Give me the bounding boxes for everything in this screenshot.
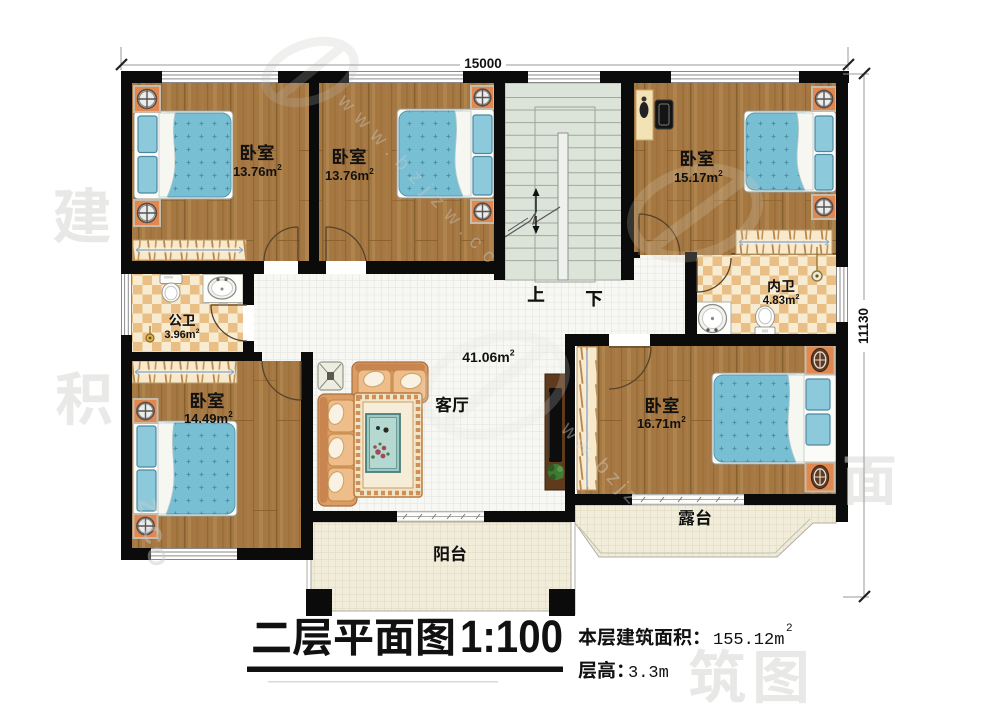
svg-text:2: 2 <box>228 410 233 419</box>
svg-text:41.06m: 41.06m <box>462 349 509 365</box>
svg-text:15.17m: 15.17m <box>674 170 718 185</box>
svg-text:2: 2 <box>510 348 515 358</box>
svg-text:1:100: 1:100 <box>460 611 563 662</box>
svg-text:2: 2 <box>796 293 800 301</box>
svg-text:4.83m: 4.83m <box>763 295 796 307</box>
svg-text:155.12m: 155.12m <box>713 631 784 650</box>
svg-text:16.71m: 16.71m <box>637 416 681 431</box>
svg-text:2: 2 <box>718 169 723 178</box>
svg-text:2: 2 <box>786 623 793 635</box>
svg-text:14.49m: 14.49m <box>184 411 228 426</box>
svg-text:13.76m: 13.76m <box>325 168 369 183</box>
svg-text:13.76m: 13.76m <box>233 164 277 179</box>
svg-text:2: 2 <box>369 167 374 176</box>
svg-text:11130: 11130 <box>856 308 871 344</box>
svg-text:15000: 15000 <box>464 56 502 71</box>
svg-text:2: 2 <box>277 163 282 172</box>
svg-text:2: 2 <box>196 328 200 335</box>
svg-text:3.3m: 3.3m <box>628 664 669 683</box>
svg-text:2: 2 <box>681 415 686 424</box>
svg-text:3.96m: 3.96m <box>164 329 195 341</box>
